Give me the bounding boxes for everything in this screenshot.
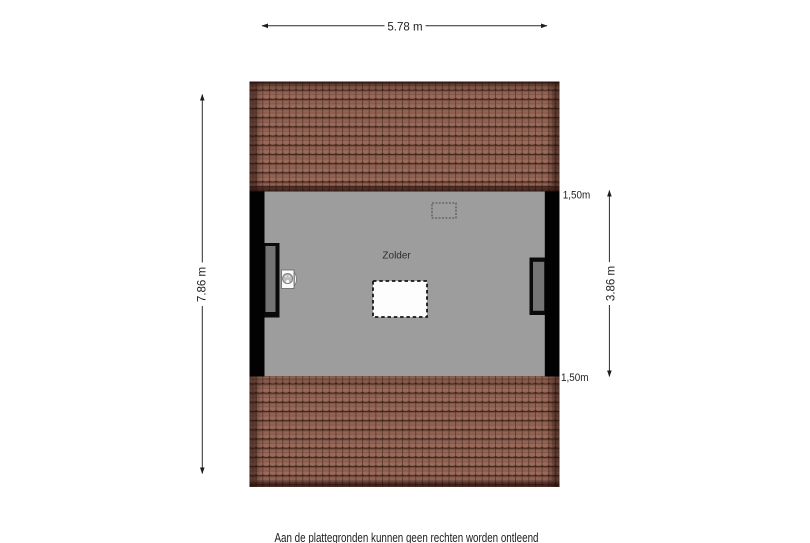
svg-text:Zolder: Zolder: [382, 251, 411, 262]
svg-text:Aan de plattegronden kunnen ge: Aan de plattegronden kunnen geen rechten…: [275, 531, 539, 543]
svg-text:7.86 m: 7.86 m: [197, 267, 209, 302]
svg-text:3.86 m: 3.86 m: [606, 266, 618, 301]
svg-text:1,50m: 1,50m: [561, 372, 589, 384]
svg-text:1,50m: 1,50m: [563, 190, 591, 202]
svg-text:5.78 m: 5.78 m: [387, 22, 422, 34]
